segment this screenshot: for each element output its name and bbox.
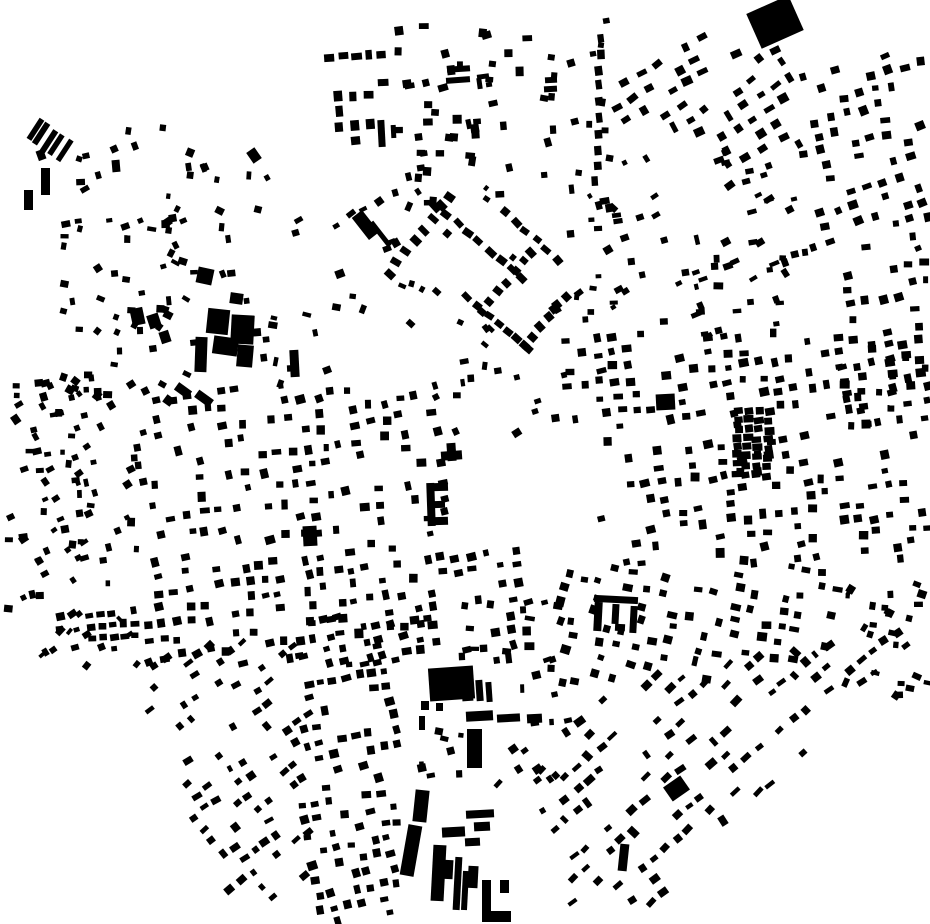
building-footprint bbox=[747, 299, 754, 306]
building-footprint bbox=[818, 582, 826, 590]
building-footprint bbox=[904, 138, 914, 146]
building-footprint bbox=[212, 566, 220, 572]
building-footprint bbox=[109, 622, 117, 628]
building-footprint bbox=[718, 444, 725, 450]
building-footprint bbox=[350, 578, 357, 587]
building-footprint bbox=[324, 444, 329, 451]
building-footprint bbox=[381, 682, 390, 690]
building-footprint bbox=[445, 133, 454, 141]
building-footprint bbox=[423, 615, 432, 622]
building-footprint bbox=[60, 450, 65, 455]
building-footprint bbox=[756, 407, 764, 415]
building-footprint bbox=[898, 681, 905, 686]
building-footprint bbox=[562, 383, 572, 390]
building-footprint bbox=[876, 389, 882, 396]
building-footprint bbox=[775, 510, 783, 517]
building-footprint bbox=[848, 336, 858, 344]
building-footprint bbox=[885, 480, 892, 488]
building-footprint bbox=[597, 34, 604, 43]
building-footprint bbox=[744, 407, 753, 415]
building-footprint bbox=[241, 468, 250, 475]
building-footprint bbox=[780, 607, 789, 615]
building-footprint bbox=[316, 567, 323, 576]
building-footprint bbox=[618, 406, 627, 412]
building-footprint bbox=[292, 479, 299, 488]
building-footprint bbox=[522, 35, 532, 41]
building-footprint bbox=[741, 451, 751, 459]
building-footprint bbox=[467, 565, 477, 571]
building-footprint bbox=[401, 445, 411, 452]
building-footprint bbox=[547, 54, 555, 61]
building-footprint bbox=[597, 50, 605, 60]
building-footprint bbox=[482, 911, 511, 922]
building-footprint bbox=[421, 701, 429, 710]
building-footprint bbox=[869, 602, 876, 610]
building-footprint bbox=[909, 525, 916, 531]
building-footprint bbox=[189, 528, 196, 534]
building-footprint bbox=[558, 678, 567, 687]
building-footprint bbox=[312, 724, 321, 731]
building-footprint bbox=[13, 383, 20, 388]
building-footprint bbox=[732, 450, 742, 458]
building-footprint bbox=[173, 637, 180, 644]
building-footprint bbox=[190, 270, 198, 275]
building-footprint bbox=[401, 647, 412, 656]
building-footprint bbox=[134, 546, 139, 553]
building-footprint bbox=[741, 650, 749, 656]
building-footprint bbox=[587, 309, 594, 315]
building-footprint bbox=[679, 510, 687, 516]
building-footprint bbox=[733, 309, 742, 314]
building-footprint bbox=[903, 401, 912, 407]
building-footprint bbox=[504, 49, 512, 57]
building-footprint bbox=[296, 636, 306, 646]
building-footprint bbox=[777, 401, 785, 409]
building-footprint bbox=[276, 604, 286, 612]
building-footprint bbox=[360, 503, 370, 512]
building-footprint bbox=[718, 459, 727, 465]
building-footprint bbox=[276, 481, 283, 487]
building-footprint bbox=[347, 568, 354, 575]
building-footprint bbox=[741, 462, 750, 469]
building-footprint bbox=[853, 363, 861, 371]
building-footprint bbox=[656, 394, 676, 411]
building-footprint bbox=[367, 540, 375, 547]
building-footprint bbox=[833, 334, 843, 342]
building-footprint bbox=[168, 589, 178, 595]
building-footprint bbox=[497, 562, 504, 568]
building-footprint bbox=[76, 509, 84, 517]
building-footprint bbox=[627, 258, 635, 266]
building-footprint bbox=[120, 633, 129, 640]
building-footprint bbox=[473, 118, 481, 124]
building-footprint bbox=[233, 504, 241, 512]
building-footprint bbox=[763, 530, 772, 536]
building-footprint bbox=[886, 511, 893, 517]
building-footprint bbox=[647, 637, 658, 646]
building-footprint bbox=[652, 446, 662, 456]
building-footprint bbox=[99, 557, 107, 564]
building-footprint bbox=[306, 617, 314, 625]
building-footprint bbox=[345, 548, 356, 556]
building-footprint bbox=[133, 443, 141, 451]
building-footprint bbox=[316, 905, 325, 915]
building-footprint bbox=[199, 527, 208, 537]
building-footprint bbox=[369, 684, 379, 691]
building-footprint bbox=[431, 483, 448, 492]
building-footprint bbox=[372, 848, 381, 858]
building-footprint bbox=[145, 638, 154, 644]
building-footprint bbox=[381, 820, 390, 827]
building-footprint bbox=[596, 396, 603, 401]
building-footprint bbox=[65, 460, 72, 468]
building-footprint bbox=[637, 560, 645, 566]
building-footprint bbox=[431, 517, 448, 526]
building-footprint bbox=[834, 347, 843, 355]
building-footprint bbox=[103, 391, 112, 398]
building-footprint bbox=[456, 770, 462, 777]
building-footprint bbox=[310, 876, 320, 885]
building-footprint bbox=[874, 99, 882, 107]
building-footprint bbox=[194, 337, 207, 372]
building-footprint bbox=[660, 318, 668, 325]
building-footprint bbox=[830, 127, 839, 137]
building-footprint bbox=[83, 387, 89, 393]
building-footprint bbox=[111, 160, 120, 173]
building-footprint bbox=[376, 51, 386, 59]
building-footprint bbox=[660, 654, 668, 661]
building-footprint bbox=[900, 497, 910, 503]
building-footprint bbox=[575, 169, 582, 176]
building-footprint bbox=[383, 416, 392, 425]
building-footprint bbox=[390, 803, 397, 810]
building-footprint bbox=[773, 321, 780, 327]
building-footprint bbox=[735, 426, 743, 433]
building-footprint bbox=[842, 395, 850, 403]
building-footprint bbox=[111, 270, 119, 277]
building-footprint bbox=[567, 230, 575, 238]
building-footprint bbox=[551, 414, 560, 423]
building-footprint bbox=[14, 393, 20, 398]
building-footprint bbox=[494, 367, 502, 374]
building-footprint bbox=[262, 336, 269, 343]
building-footprint bbox=[377, 516, 385, 525]
building-footprint bbox=[743, 415, 753, 423]
building-footprint bbox=[652, 541, 659, 550]
building-footprint bbox=[316, 425, 324, 434]
building-footprint bbox=[726, 500, 735, 507]
building-footprint bbox=[860, 295, 869, 305]
building-footprint bbox=[475, 595, 482, 604]
building-footprint bbox=[626, 378, 636, 387]
building-footprint bbox=[462, 688, 474, 702]
building-footprint bbox=[541, 172, 548, 178]
building-footprint bbox=[741, 471, 750, 479]
building-footprint bbox=[577, 348, 586, 357]
building-footprint bbox=[596, 274, 602, 278]
building-footprint bbox=[60, 525, 69, 534]
building-footprint bbox=[921, 415, 929, 421]
building-footprint bbox=[845, 404, 853, 414]
building-footprint bbox=[890, 265, 899, 273]
building-footprint bbox=[333, 90, 343, 101]
building-footprint bbox=[309, 498, 317, 504]
building-footprint bbox=[348, 842, 355, 847]
building-footprint bbox=[144, 621, 153, 629]
building-footprint bbox=[689, 364, 699, 373]
building-footprint bbox=[379, 578, 386, 584]
building-footprint bbox=[356, 450, 365, 459]
building-footprint bbox=[750, 590, 758, 600]
building-footprint bbox=[329, 830, 335, 837]
building-footprint bbox=[474, 822, 490, 832]
building-footprint bbox=[520, 606, 526, 613]
building-footprint bbox=[662, 509, 671, 517]
building-footprint bbox=[735, 333, 742, 342]
building-footprint bbox=[426, 409, 437, 416]
building-footprint bbox=[366, 745, 375, 755]
building-footprint bbox=[87, 503, 95, 509]
building-footprint bbox=[465, 838, 480, 847]
building-footprint bbox=[902, 355, 909, 362]
building-footprint bbox=[799, 150, 808, 158]
building-footprint bbox=[322, 785, 331, 791]
building-footprint bbox=[361, 791, 371, 799]
building-footprint bbox=[237, 434, 244, 442]
building-footprint bbox=[225, 235, 231, 243]
building-footprint bbox=[893, 220, 900, 227]
building-footprint bbox=[505, 653, 512, 664]
building-footprint bbox=[788, 383, 797, 391]
building-footprint bbox=[893, 543, 902, 552]
building-footprint bbox=[339, 599, 347, 607]
building-footprint bbox=[469, 647, 479, 651]
building-footprint bbox=[350, 120, 360, 131]
building-footprint bbox=[378, 79, 389, 87]
building-footprint bbox=[111, 646, 117, 652]
building-footprint bbox=[849, 316, 856, 323]
building-footprint bbox=[681, 269, 689, 277]
building-footprint bbox=[480, 645, 488, 653]
building-footprint bbox=[786, 466, 794, 474]
building-footprint bbox=[334, 565, 344, 573]
building-footprint bbox=[212, 335, 239, 356]
building-footprint bbox=[486, 82, 493, 88]
building-footprint bbox=[915, 368, 926, 378]
building-footprint bbox=[887, 591, 893, 598]
building-footprint bbox=[333, 526, 339, 534]
building-footprint bbox=[436, 703, 443, 711]
building-footprint bbox=[569, 184, 575, 194]
building-footprint bbox=[740, 376, 746, 383]
building-footprint bbox=[334, 858, 344, 867]
building-footprint bbox=[365, 50, 372, 60]
building-footprint bbox=[431, 109, 439, 116]
building-footprint bbox=[794, 555, 802, 563]
building-footprint bbox=[794, 523, 801, 529]
building-footprint bbox=[127, 518, 135, 527]
building-footprint bbox=[896, 415, 903, 424]
building-footprint bbox=[887, 405, 894, 412]
building-footprint bbox=[512, 547, 520, 555]
building-footprint bbox=[166, 296, 172, 305]
building-footprint bbox=[669, 623, 676, 629]
building-footprint bbox=[810, 119, 819, 128]
building-footprint bbox=[772, 482, 780, 489]
building-footprint bbox=[500, 121, 507, 130]
building-footprint bbox=[613, 394, 623, 400]
building-footprint bbox=[682, 413, 691, 420]
building-footprint bbox=[364, 728, 372, 737]
building-footprint bbox=[909, 430, 918, 439]
building-footprint bbox=[506, 611, 516, 621]
building-footprint bbox=[914, 334, 923, 343]
building-footprint bbox=[750, 558, 757, 567]
building-footprint bbox=[217, 387, 226, 395]
building-footprint bbox=[586, 121, 592, 128]
building-footprint bbox=[90, 459, 97, 465]
building-footprint bbox=[254, 561, 263, 570]
building-footprint bbox=[522, 626, 531, 635]
building-footprint bbox=[233, 629, 240, 636]
building-footprint bbox=[553, 602, 563, 610]
building-footprint bbox=[360, 623, 366, 630]
building-footprint bbox=[733, 460, 743, 467]
building-footprint bbox=[400, 623, 408, 631]
building-footprint bbox=[453, 392, 461, 398]
building-footprint bbox=[545, 77, 557, 84]
building-footprint bbox=[467, 374, 474, 382]
building-footprint bbox=[374, 486, 383, 492]
building-footprint bbox=[75, 218, 82, 224]
building-footprint bbox=[453, 115, 462, 124]
building-footprint bbox=[498, 579, 507, 587]
building-footprint bbox=[845, 593, 850, 598]
building-footprint bbox=[524, 642, 534, 650]
building-footprint bbox=[280, 636, 287, 645]
building-footprint bbox=[419, 23, 429, 29]
building-footprint bbox=[527, 714, 542, 724]
building-footprint bbox=[549, 719, 554, 725]
building-footprint bbox=[124, 235, 130, 243]
building-footprint bbox=[868, 345, 877, 353]
building-footprint bbox=[438, 568, 447, 575]
building-footprint bbox=[914, 602, 923, 607]
building-footprint bbox=[637, 331, 644, 338]
building-footprint bbox=[862, 421, 872, 428]
building-footprint bbox=[792, 400, 799, 409]
building-footprint bbox=[183, 511, 191, 520]
building-footprint bbox=[360, 853, 368, 860]
building-footprint bbox=[739, 350, 749, 356]
building-footprint bbox=[486, 600, 494, 609]
building-footprint bbox=[888, 82, 895, 91]
building-footprint bbox=[689, 462, 696, 469]
building-footprint bbox=[616, 423, 623, 429]
building-footprint bbox=[125, 127, 132, 135]
building-footprint bbox=[138, 290, 145, 296]
building-footprint bbox=[806, 491, 815, 500]
building-footprint bbox=[424, 101, 432, 108]
building-footprint bbox=[335, 106, 343, 118]
building-footprint bbox=[427, 620, 438, 629]
building-footprint bbox=[633, 391, 640, 397]
building-footprint bbox=[761, 376, 768, 382]
building-footprint bbox=[594, 226, 602, 232]
building-footprint bbox=[764, 427, 774, 435]
building-footprint bbox=[739, 556, 748, 565]
building-footprint bbox=[434, 727, 443, 735]
building-footprint bbox=[385, 609, 394, 616]
building-footprint bbox=[594, 161, 602, 170]
building-footprint bbox=[246, 576, 255, 585]
building-footprint bbox=[839, 515, 849, 525]
building-footprint bbox=[471, 130, 480, 139]
building-footprint bbox=[615, 624, 625, 632]
building-footprint bbox=[414, 133, 422, 141]
building-footprint bbox=[366, 884, 374, 892]
building-footprint bbox=[246, 171, 251, 179]
building-footprint bbox=[224, 439, 233, 448]
building-footprint bbox=[260, 354, 267, 362]
building-footprint bbox=[744, 515, 753, 524]
building-footprint bbox=[122, 276, 130, 283]
building-footprint bbox=[248, 591, 256, 600]
building-footprint bbox=[582, 381, 589, 389]
building-footprint bbox=[236, 344, 254, 367]
building-footprint bbox=[591, 176, 598, 186]
building-footprint bbox=[737, 483, 747, 491]
building-footprint bbox=[36, 468, 44, 473]
building-footprint bbox=[582, 316, 588, 322]
building-footprint bbox=[117, 348, 122, 355]
building-footprint bbox=[572, 415, 579, 424]
building-footprint bbox=[594, 66, 603, 76]
building-footprint bbox=[366, 119, 376, 130]
building-footprint bbox=[281, 500, 288, 510]
building-footprint bbox=[589, 286, 597, 292]
building-footprint bbox=[507, 624, 517, 634]
building-footprint bbox=[694, 586, 703, 592]
building-footprint bbox=[465, 152, 475, 159]
building-footprint bbox=[68, 433, 75, 438]
building-footprint bbox=[764, 445, 773, 452]
building-footprint bbox=[393, 560, 401, 567]
building-footprint bbox=[594, 130, 602, 139]
building-footprint bbox=[188, 616, 196, 623]
building-footprint bbox=[304, 587, 310, 597]
building-footprint bbox=[621, 344, 631, 352]
building-footprint bbox=[349, 293, 356, 299]
building-footprint bbox=[442, 826, 465, 837]
building-footprint bbox=[284, 414, 292, 421]
building-footprint bbox=[325, 797, 332, 805]
building-footprint bbox=[861, 244, 871, 251]
building-footprint bbox=[752, 453, 762, 460]
building-footprint bbox=[431, 501, 445, 508]
building-footprint bbox=[826, 175, 835, 181]
building-footprint bbox=[96, 611, 105, 618]
building-footprint bbox=[217, 405, 226, 412]
building-footprint bbox=[858, 372, 867, 380]
building-footprint bbox=[242, 564, 250, 574]
building-footprint bbox=[827, 113, 835, 122]
building-footprint bbox=[466, 710, 493, 721]
building-footprint bbox=[769, 654, 778, 663]
building-footprint bbox=[915, 356, 925, 364]
building-footprint bbox=[409, 615, 419, 624]
building-footprint bbox=[547, 665, 554, 672]
